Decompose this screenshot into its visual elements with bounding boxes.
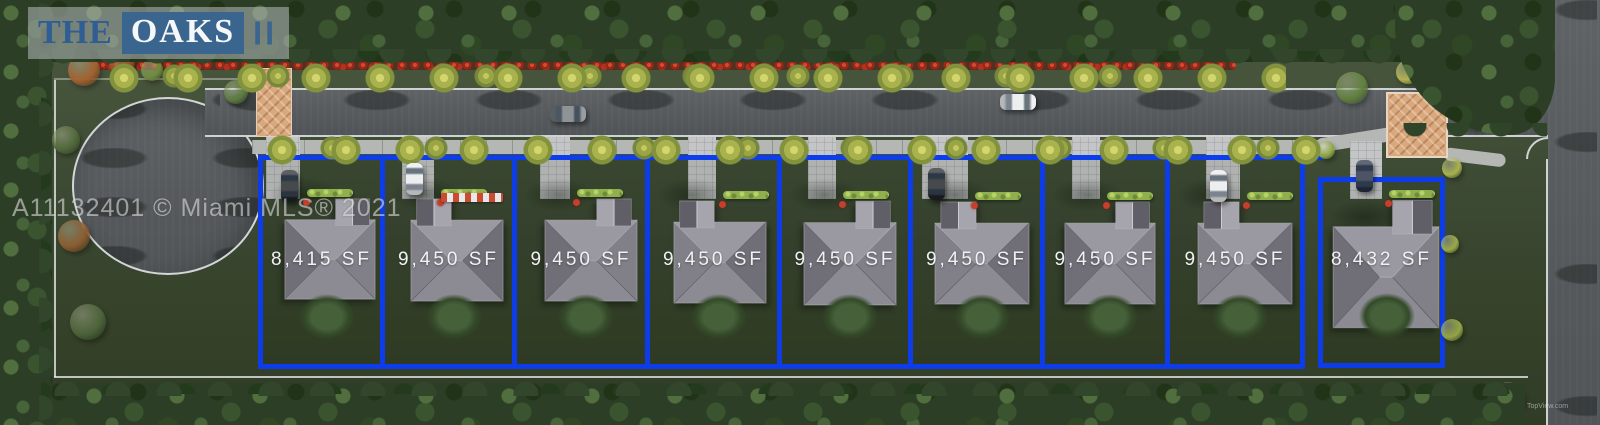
parked-car: [928, 168, 945, 200]
driving-car: [550, 106, 586, 122]
lot-area-label: 9,450 SF: [1045, 249, 1165, 271]
lot-area-label: 9,450 SF: [650, 249, 777, 271]
flower-bush: [1385, 200, 1392, 207]
parked-car: [1210, 170, 1227, 202]
ornamental-tree: [70, 304, 106, 340]
flower-bush: [971, 202, 978, 209]
lot-area-label: 9,450 SF: [385, 249, 512, 271]
parked-car: [1356, 160, 1373, 192]
parked-car: [406, 163, 423, 195]
ornamental-tree: [1317, 141, 1335, 159]
logo-suffix: II: [253, 14, 277, 53]
lot-parcel: 8,415 SF: [258, 155, 385, 369]
backyard-tree: [426, 294, 482, 340]
site-plan-rendering: 8,415 SF 9,450 SF: [0, 0, 1600, 425]
ornamental-tree: [1296, 136, 1316, 156]
backyard-tree: [954, 294, 1010, 340]
front-hedge: [1247, 192, 1293, 200]
lot-parcel: 9,450 SF: [1165, 155, 1305, 369]
backyard-tree: [558, 294, 614, 340]
lot-parcel: 9,450 SF: [512, 155, 650, 369]
lot-parcel: 9,450 SF: [1040, 155, 1170, 369]
lot-parcel: 9,450 SF: [777, 155, 913, 369]
lot-parcel: 8,432 SF: [1318, 177, 1445, 368]
ornamental-tree: [1442, 158, 1462, 178]
mls-watermark: A11132401 © Miami MLS® 2021: [12, 194, 402, 223]
front-hedge: [843, 191, 889, 199]
backyard-tree: [1082, 294, 1138, 340]
flower-bush: [1243, 202, 1250, 209]
backyard-tree: [691, 294, 747, 340]
lot-area-label: 9,450 SF: [1170, 249, 1300, 271]
logo-name: OAKS: [122, 12, 244, 53]
ornamental-tree: [1441, 319, 1463, 341]
street-vertical: [1548, 0, 1600, 425]
curb-line: [1546, 159, 1548, 425]
ornamental-tree: [224, 80, 248, 104]
flower-bush: [573, 199, 580, 206]
paver-crosswalk: [256, 68, 292, 137]
logo-prefix: THE: [38, 14, 113, 52]
front-hedge: [1107, 192, 1153, 200]
lot-area-label: 9,450 SF: [517, 249, 645, 271]
front-hedge: [1389, 190, 1435, 198]
pergola-awning: [441, 193, 503, 202]
lot-area-label: 8,432 SF: [1323, 249, 1440, 271]
lot-area-label: 9,450 SF: [913, 249, 1040, 271]
ornamental-tree: [1441, 235, 1459, 253]
forest-band-bottom: [0, 383, 1525, 425]
ornamental-tree: [1336, 72, 1368, 104]
front-hedge: [975, 192, 1021, 200]
lot-area-label: 8,415 SF: [263, 249, 380, 271]
backyard-tree: [822, 294, 878, 340]
backyard-tree: [299, 294, 355, 340]
flower-bush: [1103, 202, 1110, 209]
backyard-tree: [1359, 293, 1415, 339]
front-hedge: [577, 189, 623, 197]
driving-car: [1000, 94, 1036, 110]
flower-bush: [719, 201, 726, 208]
lot-area-label: 9,450 SF: [782, 249, 908, 271]
lot-parcel: 9,450 SF: [380, 155, 517, 369]
development-logo: THE OAKS II: [28, 7, 289, 59]
corner-watermark: TopView.com: [1527, 403, 1568, 410]
lot-parcel: 9,450 SF: [645, 155, 782, 369]
flower-bush: [839, 201, 846, 208]
backyard-tree: [1212, 294, 1268, 340]
front-hedge: [723, 191, 769, 199]
